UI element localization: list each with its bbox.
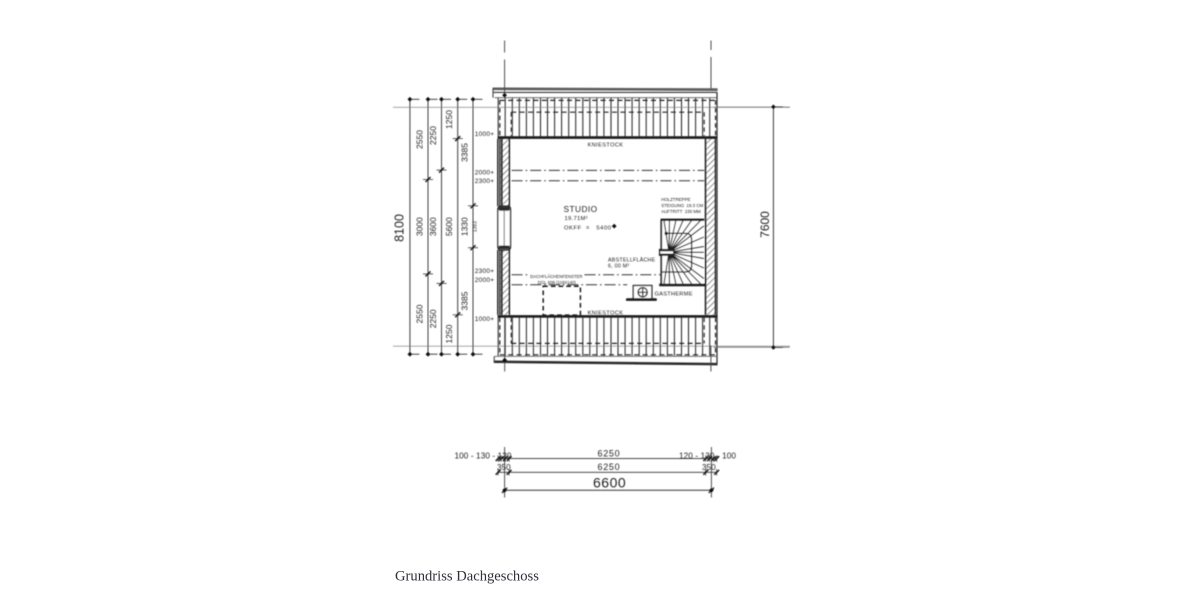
svg-text:2300+: 2300+ <box>475 178 495 185</box>
svg-text:AUFTRITT 230 MM: AUFTRITT 230 MM <box>661 209 701 214</box>
svg-text:KNIESTOCK: KNIESTOCK <box>588 143 624 149</box>
svg-text:Grundriss Dachgeschoss: Grundriss Dachgeschoss <box>395 569 539 585</box>
svg-text:3385: 3385 <box>459 143 469 162</box>
svg-text:6, 00 M²: 6, 00 M² <box>608 264 629 270</box>
svg-text:2300+: 2300+ <box>475 268 495 275</box>
svg-text:7600: 7600 <box>758 211 772 238</box>
svg-text:2550: 2550 <box>414 130 424 149</box>
svg-text:1250: 1250 <box>444 324 454 343</box>
svg-text:STEIGUNG 19.3 CM: STEIGUNG 19.3 CM <box>661 203 703 208</box>
svg-text:2000+: 2000+ <box>475 170 495 177</box>
svg-text:2250: 2250 <box>428 309 438 328</box>
svg-text:STUDIO: STUDIO <box>564 204 598 214</box>
svg-text:DGL 608 (118X140): DGL 608 (118X140) <box>538 280 577 285</box>
svg-text:19.71M²: 19.71M² <box>565 216 588 222</box>
svg-text:1330: 1330 <box>459 217 469 236</box>
svg-text:HOLZTREPPE: HOLZTREPPE <box>661 197 690 202</box>
svg-text:3385: 3385 <box>459 291 469 310</box>
svg-text:5600: 5600 <box>444 217 454 236</box>
svg-text:1250: 1250 <box>444 110 454 129</box>
svg-text:6250: 6250 <box>598 462 621 472</box>
svg-text:3600: 3600 <box>428 217 438 236</box>
svg-text:6600: 6600 <box>593 474 626 490</box>
svg-text:2550: 2550 <box>414 304 424 323</box>
svg-text:1000+: 1000+ <box>475 316 495 323</box>
svg-text:ABSTELLFLÄCHE: ABSTELLFLÄCHE <box>608 256 656 263</box>
svg-text:OKFF = 5400: OKFF = 5400 <box>564 226 612 232</box>
svg-text:8100: 8100 <box>393 214 407 242</box>
svg-text:6250: 6250 <box>598 448 621 458</box>
svg-text:2000+: 2000+ <box>475 277 495 284</box>
svg-text:DACHFLÄCHENFENSTER: DACHFLÄCHENFENSTER <box>530 274 582 279</box>
svg-text:3000: 3000 <box>414 217 424 236</box>
svg-text:1000+: 1000+ <box>475 131 495 138</box>
svg-text:GASTHERME: GASTHERME <box>655 291 693 297</box>
svg-text:350: 350 <box>702 463 716 472</box>
svg-text:1383: 1383 <box>473 221 479 232</box>
svg-text:2250: 2250 <box>428 126 438 145</box>
